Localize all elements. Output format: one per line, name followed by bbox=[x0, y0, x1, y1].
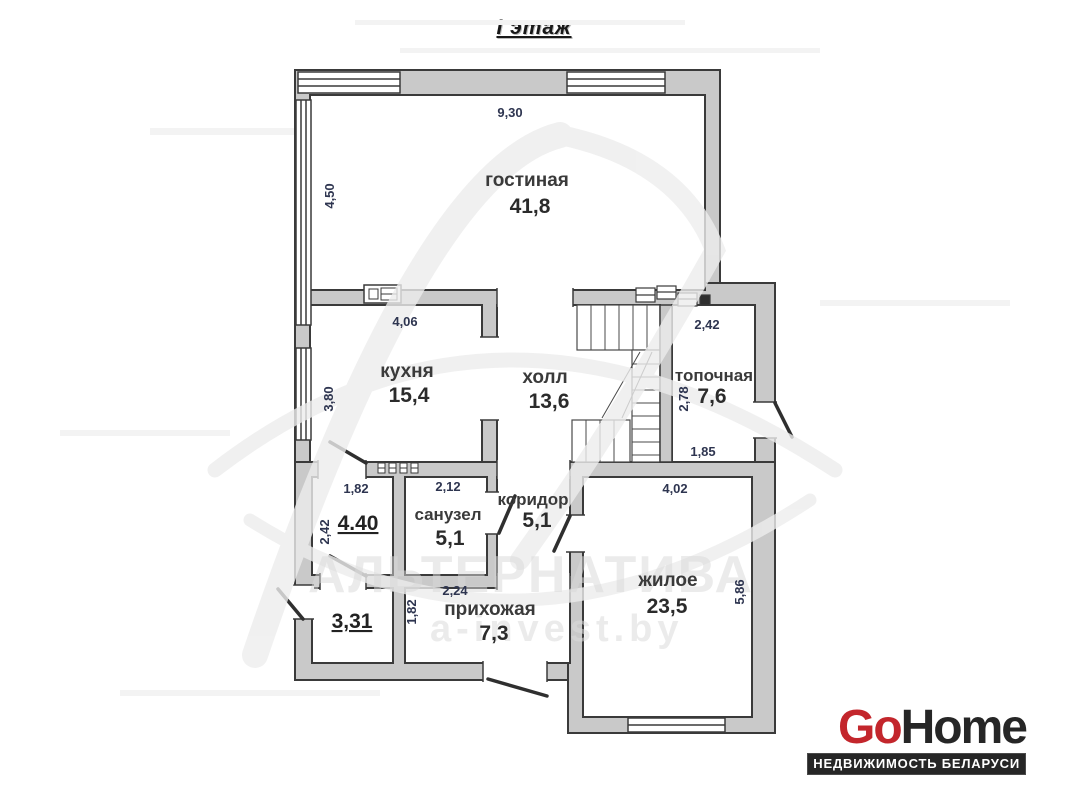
dim-porchtop-height: 2,42 bbox=[317, 519, 332, 544]
floorplan-drawing: АЛЬТЕРНАТИВА a-invest.by 9,30 4,50 4,06 … bbox=[0, 0, 1068, 800]
logo-home: Home bbox=[901, 701, 1026, 754]
dim-zhiloe-width: 4,02 bbox=[662, 481, 687, 496]
window-top-left bbox=[298, 72, 400, 93]
area-koridor: 5,1 bbox=[522, 509, 552, 532]
area-sanuzel: 5,1 bbox=[435, 527, 465, 550]
label-holl: холл bbox=[522, 367, 567, 388]
dim-kuhnya-width: 4,06 bbox=[392, 314, 417, 329]
gohome-logo-text: GoHome bbox=[838, 704, 1026, 752]
label-koridor: коридор bbox=[497, 490, 568, 509]
label-gostinaya: гостиная bbox=[485, 170, 569, 191]
dim-topochnaya-bottom: 1,85 bbox=[690, 444, 715, 459]
floorplan-page: I этаж bbox=[0, 0, 1068, 800]
label-topochnaya: топочная bbox=[675, 366, 753, 385]
area-porch-top: 4.40 bbox=[338, 512, 379, 535]
dim-zhiloe-height: 5,86 bbox=[732, 579, 747, 604]
dim-topochnaya-height: 2,78 bbox=[676, 386, 691, 411]
area-zhiloe: 23,5 bbox=[647, 595, 688, 618]
window-left-tall bbox=[296, 100, 311, 325]
label-sanuzel: санузел bbox=[414, 505, 481, 524]
dim-kuhnya-height: 3,80 bbox=[321, 386, 336, 411]
gohome-logo: GoHome НЕДВИЖИМОСТЬ БЕЛАРУСИ bbox=[826, 704, 1026, 775]
dim-topochnaya-width: 2,42 bbox=[694, 317, 719, 332]
area-gostinaya: 41,8 bbox=[510, 195, 551, 218]
dim-gostinaya-width: 9,30 bbox=[497, 105, 522, 120]
area-kuhnya: 15,4 bbox=[389, 384, 430, 407]
dim-prihozhaya-width: 2,24 bbox=[442, 583, 468, 598]
window-zhiloe bbox=[628, 718, 725, 732]
label-kuhnya: кухня bbox=[380, 361, 433, 382]
area-topochnaya: 7,6 bbox=[697, 385, 726, 408]
logo-tagline: НЕДВИЖИМОСТЬ БЕЛАРУСИ bbox=[807, 753, 1026, 775]
label-zhiloe: жилое bbox=[637, 570, 697, 591]
dim-sanuzel-width: 2,12 bbox=[435, 479, 460, 494]
dim-gostinaya-height: 4,50 bbox=[322, 183, 337, 208]
logo-go: Go bbox=[838, 701, 901, 754]
dim-porchtop-width: 1,82 bbox=[343, 481, 368, 496]
label-prihozhaya: прихожая bbox=[444, 599, 536, 620]
area-porch-bottom: 3,31 bbox=[332, 610, 373, 633]
area-prihozhaya: 7,3 bbox=[479, 622, 508, 645]
dim-prihozhaya-height: 1,82 bbox=[404, 599, 419, 624]
area-holl: 13,6 bbox=[529, 390, 570, 413]
window-top-right bbox=[567, 72, 665, 93]
room-gostinaya bbox=[310, 95, 705, 290]
window-kitchen bbox=[296, 348, 311, 440]
